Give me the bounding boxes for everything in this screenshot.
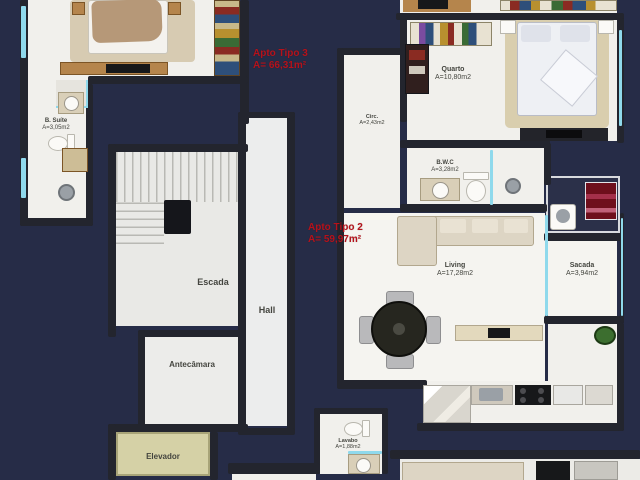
room-floor-hall (246, 118, 287, 426)
sofa-cushion (472, 219, 498, 233)
apartment-label-tipo2: Apto Tipo 2 A= 59,97m² (308, 222, 363, 246)
room-floor-lower-left-strip (232, 474, 316, 480)
room-name: Living (420, 262, 490, 270)
nightstand (72, 2, 85, 15)
wall (138, 330, 246, 337)
room-label-escada: Escada (185, 277, 241, 287)
shower-drain (505, 178, 521, 194)
room-floor-circ (344, 55, 400, 208)
room-label-lavabo: Lavabo A=1,88m2 (322, 438, 374, 451)
appliance-top-strip (418, 0, 448, 9)
bed-blanket (91, 0, 162, 43)
counter-lower-unit (574, 461, 618, 480)
toilet-tank (362, 420, 370, 437)
burner (538, 397, 544, 403)
kitchen-sink (479, 388, 503, 401)
room-label-hall: Hall (250, 305, 284, 315)
wall (382, 408, 388, 474)
closet-top-strip (500, 0, 617, 11)
room-label-antecamara: Antecâmara (150, 360, 234, 369)
wall (337, 48, 407, 55)
cooktop-lower-unit (536, 461, 570, 480)
apartment-area: A= 59,97m² (308, 234, 363, 246)
burner (538, 388, 544, 394)
sofa-cushion (440, 219, 466, 233)
wall (390, 450, 640, 459)
toilet (466, 180, 486, 202)
stair-treads-upper (116, 152, 238, 202)
stair-center-wall (164, 200, 191, 234)
nightstand (168, 2, 181, 15)
wall (210, 432, 218, 480)
closet-quarto (410, 22, 492, 46)
room-name: B.W.C (414, 160, 476, 167)
room-area: A=3,94m2 (550, 270, 614, 278)
apartment-name: Apto Tipo 3 (253, 48, 308, 60)
plant (594, 326, 616, 345)
wall (400, 140, 550, 148)
wall (108, 424, 248, 432)
room-label-circ: Circ. A=2,43m2 (346, 114, 398, 127)
balcony-glass-door (545, 215, 548, 316)
wall (238, 428, 295, 435)
dishwasher (553, 385, 583, 405)
sofa-chaise (397, 216, 437, 266)
room-area: A=17,28m2 (420, 270, 490, 278)
sink-basin (64, 96, 79, 111)
bathroom-shelf (62, 148, 88, 172)
window-glass (21, 158, 26, 198)
fridge (585, 385, 613, 405)
wall (228, 463, 320, 474)
room-area: A=3,28m2 (414, 167, 476, 174)
dining-chair (426, 316, 441, 344)
wall (108, 424, 116, 480)
wall (417, 423, 624, 431)
kitchen-counter-corner (423, 385, 471, 423)
room-area: A=10,80m2 (418, 74, 488, 82)
room-area: A=1,88m2 (322, 444, 374, 450)
toilet (344, 422, 363, 436)
wall (108, 144, 116, 337)
wardrobe (214, 0, 240, 76)
wall (337, 48, 344, 388)
console-decor (488, 328, 510, 338)
wall (138, 330, 145, 432)
wall (240, 0, 249, 124)
apartment-area: A= 66,31m² (253, 60, 308, 72)
apartment-name: Apto Tipo 2 (308, 222, 363, 234)
wall (544, 316, 624, 324)
stair-treads-lower (116, 202, 164, 244)
tv (546, 130, 582, 138)
sink-basin (432, 182, 449, 199)
room-label-bwc: B.W.C A=3,28m2 (414, 160, 476, 174)
room-name: Sacada (550, 262, 614, 270)
room-area: A=2,43m2 (346, 120, 398, 126)
window-glass (21, 6, 26, 58)
room-label-living: Living A=17,28m2 (420, 262, 490, 278)
room-label-b-suite: B. Suíte A=3,05m2 (28, 118, 84, 132)
wall (617, 323, 624, 431)
pillow (521, 25, 551, 42)
floor-plan-canvas: Apto Tipo 3 A= 66,31m² Apto Tipo 2 A= 59… (0, 0, 640, 480)
wall (238, 112, 295, 118)
room-label-quarto: Quarto A=10,80m2 (418, 66, 488, 82)
room-floor-antecamara (145, 332, 238, 426)
wall (108, 144, 248, 152)
room-name: Antecâmara (150, 360, 234, 369)
room-name: Escada (185, 277, 241, 287)
wall (544, 233, 624, 241)
balcony-glass-rail (621, 218, 623, 316)
pillow (560, 25, 590, 42)
service-shelf (585, 182, 617, 220)
wall (544, 143, 551, 185)
wall (88, 76, 248, 84)
washer (58, 184, 75, 201)
wall (20, 218, 93, 226)
window-glass (619, 30, 622, 126)
room-label-sacada: Sacada A=3,94m2 (550, 262, 614, 278)
room-name: Quarto (418, 66, 488, 74)
tv (106, 64, 150, 73)
room-area: A=3,05m2 (28, 125, 84, 132)
sink-basin (356, 458, 371, 473)
washer-door (556, 209, 570, 223)
room-label-elevador: Elevador (128, 452, 198, 461)
dining-table-center (393, 323, 405, 335)
room-name: B. Suíte (28, 118, 84, 125)
cabinet-decor (409, 50, 425, 60)
apartment-label-tipo3: Apto Tipo 3 A= 66,31m² (253, 48, 308, 72)
wall (396, 13, 624, 20)
room-name: Hall (250, 305, 284, 315)
room-name: Elevador (128, 452, 198, 461)
sofa-lower-unit (402, 462, 524, 480)
wall (238, 112, 246, 428)
burner (520, 388, 526, 394)
sofa-cushion (504, 219, 528, 233)
nightstand (598, 20, 614, 34)
wall (287, 112, 295, 432)
nightstand (500, 20, 516, 34)
burner (520, 397, 526, 403)
wall (337, 380, 427, 389)
wall (314, 408, 388, 414)
wall (400, 204, 547, 212)
shower-glass (490, 150, 493, 205)
